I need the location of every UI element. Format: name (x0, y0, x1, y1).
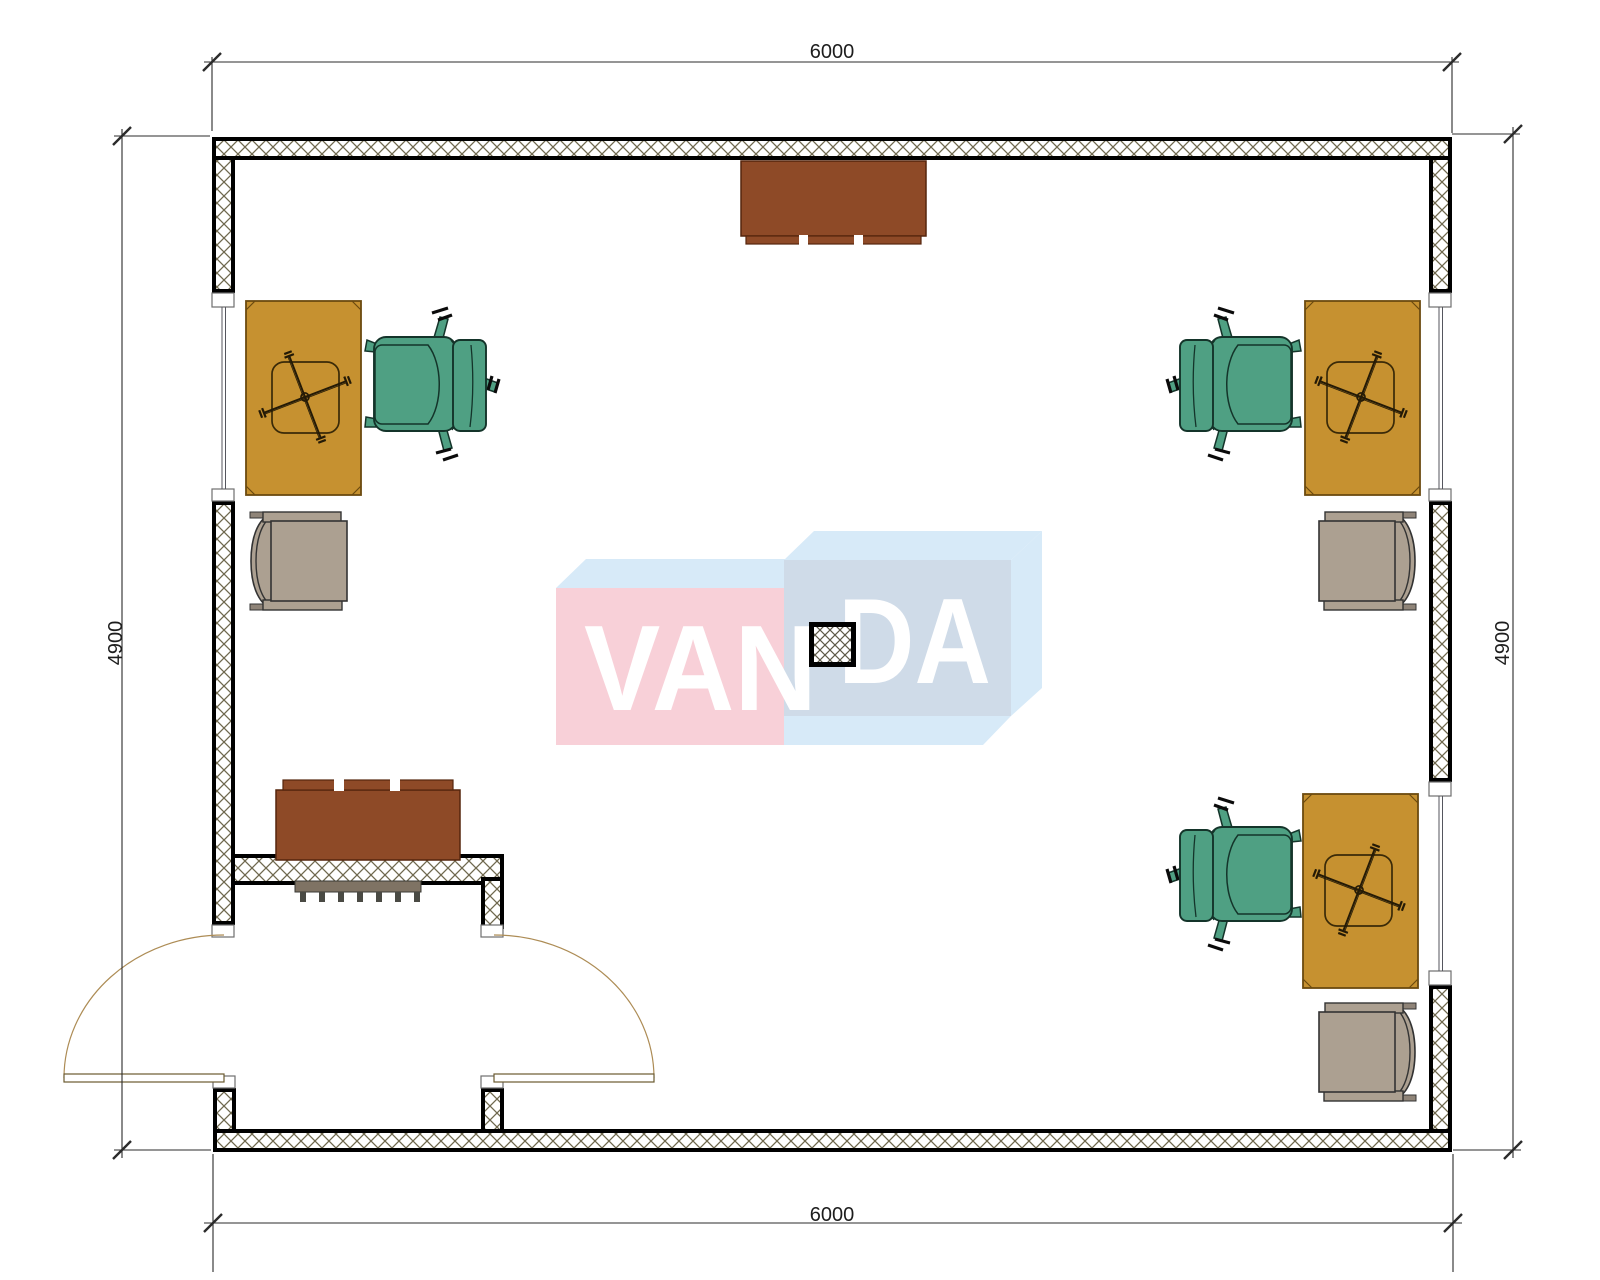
svg-text:6000: 6000 (810, 1204, 855, 1226)
svg-text:4900: 4900 (105, 621, 127, 666)
svg-text:VAN: VAN (584, 600, 817, 736)
svg-text:4900: 4900 (1492, 621, 1514, 666)
svg-text:DA: DA (838, 573, 991, 709)
svg-text:6000: 6000 (810, 41, 855, 63)
